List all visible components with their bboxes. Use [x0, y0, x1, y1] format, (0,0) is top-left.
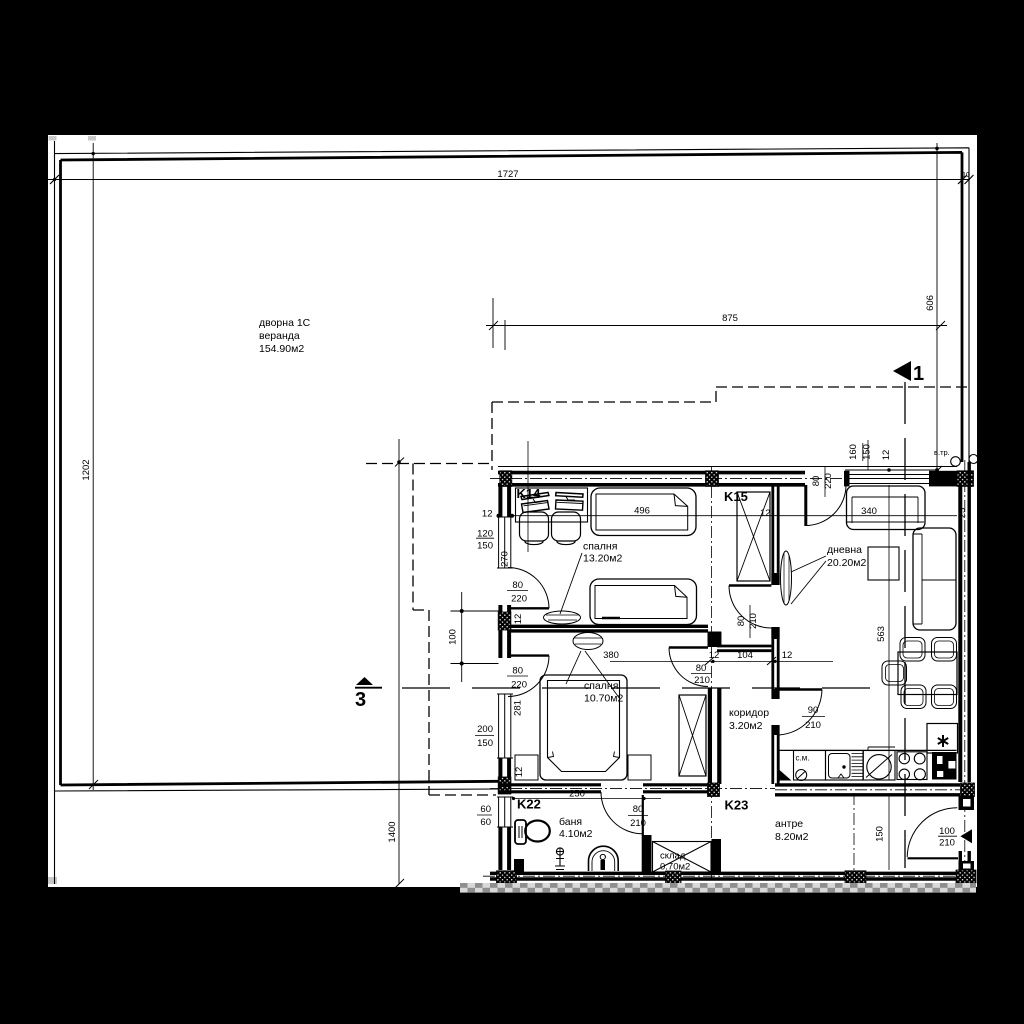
svg-text:12: 12	[760, 508, 771, 519]
svg-text:220: 220	[511, 680, 527, 691]
svg-text:80: 80	[811, 476, 822, 487]
svg-text:150: 150	[477, 738, 493, 749]
svg-text:веранда: веранда	[259, 330, 300, 342]
svg-text:100: 100	[448, 629, 459, 645]
svg-text:1: 1	[913, 363, 924, 385]
svg-text:160: 160	[848, 444, 859, 460]
svg-text:250: 250	[569, 789, 585, 800]
svg-text:496: 496	[634, 506, 650, 517]
svg-text:90: 90	[808, 705, 819, 716]
svg-text:150: 150	[875, 826, 886, 842]
svg-text:дневна: дневна	[827, 544, 862, 556]
svg-text:25: 25	[957, 508, 968, 519]
svg-text:склад: склад	[660, 851, 686, 862]
svg-text:спалня: спалня	[583, 541, 617, 553]
svg-text:563: 563	[876, 626, 887, 642]
svg-text:60: 60	[480, 804, 491, 815]
svg-text:154.90м2: 154.90м2	[259, 343, 304, 355]
svg-text:270: 270	[500, 551, 511, 567]
svg-text:12: 12	[513, 614, 524, 625]
svg-text:281: 281	[513, 700, 524, 716]
svg-text:дворна 1С: дворна 1С	[259, 317, 311, 329]
svg-text:12: 12	[881, 450, 892, 461]
svg-text:1400: 1400	[387, 821, 398, 842]
svg-text:13.20м2: 13.20м2	[583, 553, 622, 565]
svg-text:K23: K23	[725, 798, 749, 813]
svg-text:210: 210	[694, 675, 710, 686]
svg-text:в.тр.: в.тр.	[934, 448, 950, 457]
svg-text:606: 606	[925, 295, 936, 311]
svg-text:3.20м2: 3.20м2	[729, 720, 763, 732]
svg-text:100: 100	[939, 826, 955, 837]
svg-text:200: 200	[477, 724, 493, 735]
svg-text:12: 12	[514, 767, 525, 778]
svg-text:340: 340	[861, 506, 877, 517]
svg-text:80: 80	[736, 616, 747, 627]
svg-text:K15: K15	[724, 489, 748, 504]
svg-text:210: 210	[630, 818, 646, 829]
svg-text:10.70м2: 10.70м2	[584, 693, 623, 705]
svg-text:баня: баня	[559, 816, 582, 828]
svg-text:210: 210	[805, 720, 821, 731]
svg-text:3: 3	[355, 689, 366, 711]
svg-text:12: 12	[482, 509, 493, 520]
svg-text:380: 380	[603, 650, 619, 661]
svg-text:с.м.: с.м.	[796, 754, 810, 763]
svg-text:150: 150	[477, 541, 493, 552]
svg-text:80: 80	[512, 580, 523, 591]
svg-text:1202: 1202	[81, 459, 92, 480]
svg-text:12: 12	[709, 650, 720, 661]
svg-text:8.20м2: 8.20м2	[775, 831, 809, 843]
svg-text:80: 80	[633, 804, 644, 815]
svg-text:20.20м2: 20.20м2	[827, 557, 866, 569]
svg-text:12: 12	[782, 650, 793, 661]
svg-text:60: 60	[480, 817, 491, 828]
svg-text:104: 104	[737, 650, 753, 661]
svg-text:875: 875	[722, 313, 738, 324]
svg-text:210: 210	[939, 838, 955, 849]
svg-text:10: 10	[962, 172, 970, 179]
svg-text:1727: 1727	[497, 169, 518, 180]
svg-text:220: 220	[511, 594, 527, 605]
svg-text:80: 80	[512, 666, 523, 677]
svg-text:коридор: коридор	[729, 707, 769, 719]
svg-text:4.10м2: 4.10м2	[559, 828, 593, 840]
svg-text:антре: антре	[775, 818, 803, 830]
